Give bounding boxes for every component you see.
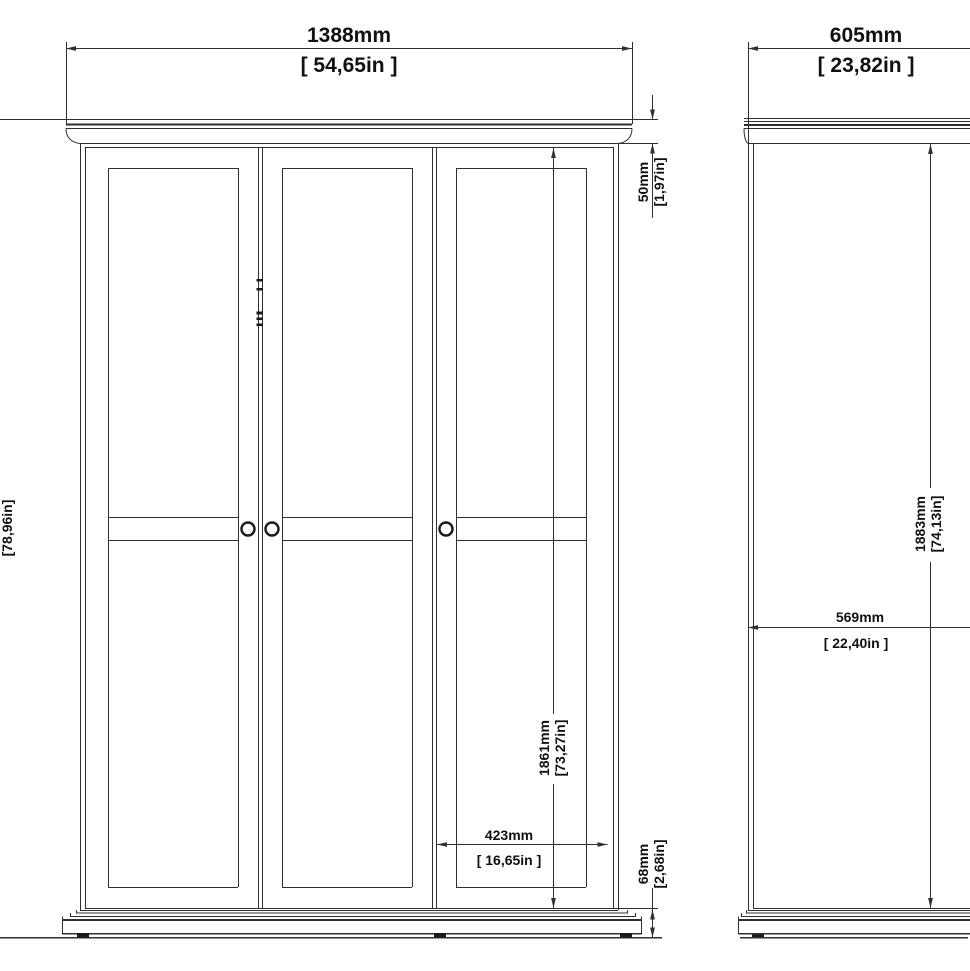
dimension-labels: 1388mm [ 54,65in ] 605mm [ 23,82in ] [78… (0, 24, 944, 889)
technical-drawing-wardrobe: 1388mm [ 54,65in ] 605mm [ 23,82in ] [78… (0, 0, 970, 971)
front-door-height-in-label: [73,27in] (552, 720, 568, 777)
side-interior-depth-mm-label: 569mm (836, 609, 884, 625)
front-plinth-in-label: [2,68in] (651, 839, 667, 888)
front-overall-height-in-label: [78,96in] (0, 500, 15, 557)
front-door-width-in-label: [ 16,65in ] (477, 852, 542, 868)
front-width-mm-label: 1388mm (307, 24, 391, 47)
front-width-in-label: [ 54,65in ] (301, 54, 398, 77)
side-body-height-in-label: [74,13in] (928, 496, 944, 553)
dimension-arrows (66, 46, 933, 937)
dimension-lines (66, 42, 970, 937)
door-knob-left (242, 523, 255, 536)
front-cornice-curves (66, 129, 632, 144)
side-cornice-curve (744, 129, 748, 144)
side-depth-in-label: [ 23,82in ] (818, 54, 915, 77)
drawing-svg: 1388mm [ 54,65in ] 605mm [ 23,82in ] [78… (0, 0, 970, 971)
front-cornice-in-label: [1,97in] (651, 157, 667, 206)
front-door-knobs (242, 523, 453, 536)
side-body-height-mm-label: 1883mm (912, 496, 928, 552)
front-view-outline (0, 120, 662, 938)
front-plinth-mm-label: 68mm (635, 844, 651, 884)
side-depth-mm-label: 605mm (830, 24, 902, 47)
front-door-width-mm-label: 423mm (485, 827, 533, 843)
side-view-outline (738, 42, 970, 938)
door-knob-right (440, 523, 453, 536)
side-interior-depth-in-label: [ 22,40in ] (824, 635, 889, 651)
door-knob-middle (266, 523, 279, 536)
front-door-height-mm-label: 1861mm (536, 720, 552, 776)
front-cornice-mm-label: 50mm (635, 162, 651, 202)
